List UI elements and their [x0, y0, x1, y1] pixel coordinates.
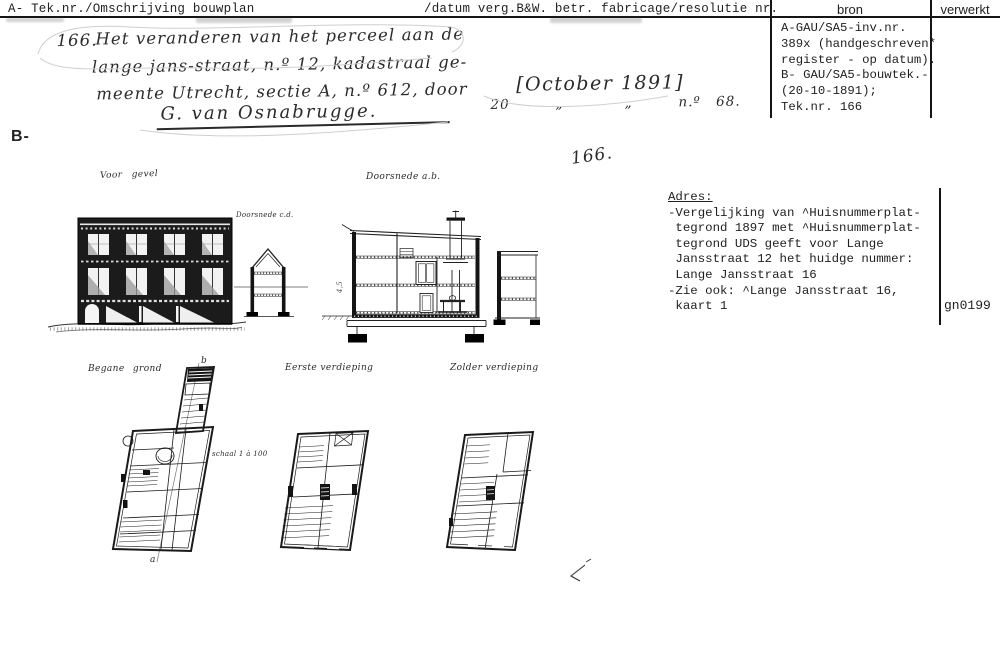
plan-ground-drawing	[113, 363, 214, 562]
plan-attic-label: Zolder verdieping	[450, 363, 538, 373]
facade-drawing	[48, 218, 246, 332]
adres-line: Jansstraat 12 het huidge nummer:	[668, 252, 921, 268]
bron-line: (20-10-1891);	[781, 84, 936, 100]
bron-column-left-rule	[770, 0, 772, 118]
adres-panel: Adres: -Vergelijking van ^Huisnummerplat…	[668, 190, 921, 315]
bron-line: Tek.nr. 166	[781, 100, 936, 116]
bron-line: A-GAU/SA5-inv.nr.	[781, 21, 936, 37]
section-ab-label: Doorsnede a.b.	[366, 172, 441, 182]
handwriting-line-3: meente Utrecht, sectie A, n.º 612, door	[96, 79, 468, 103]
column-header-verwerkt: verwerkt	[930, 2, 1000, 17]
section-marker-b: b	[201, 356, 207, 366]
section-ab-drawing	[322, 211, 540, 343]
margin-mark-b: B-	[11, 128, 30, 146]
bron-line: B- GAU/SA5-bouwtek.-	[781, 68, 936, 84]
handwritten-signature: G. van Osnabrugge.	[160, 101, 377, 125]
handwritten-center-number: 166.	[570, 143, 614, 169]
direction-arrow-mark	[571, 559, 591, 581]
handwriting-line-1: Het veranderen van het perceel aan de	[95, 24, 464, 48]
plan-first-drawing	[281, 431, 368, 550]
scale-note: schaal 1 à 100	[212, 450, 267, 458]
plan-first-label: Eerste verdieping	[285, 363, 373, 373]
adres-line: -Zie ook: ^Lange Jansstraat 16,	[668, 284, 921, 300]
section-cd-drawing	[234, 249, 308, 317]
handwritten-description: 166. Het veranderen van het perceel aan …	[0, 0, 701, 155]
adres-line: tegrond 1897 met ^Huisnummerplat-	[668, 221, 921, 237]
column-header-bron: bron	[770, 2, 930, 17]
facade-label: Voor gevel	[100, 169, 158, 181]
handwriting-line-2: lange jans-straat, n.º 12, kadastraal ge…	[92, 52, 468, 76]
bron-line: 389x (handgeschreven*	[781, 37, 936, 53]
section-marker-a: a	[150, 555, 156, 565]
handwritten-date-bracket: [October 1891]	[516, 71, 684, 95]
adres-line: kaart 1	[668, 299, 921, 315]
archive-code: gn0199	[944, 298, 991, 313]
bron-line: register - op datum).	[781, 53, 936, 69]
adres-heading: Adres:	[668, 190, 921, 206]
verwerkt-column-rule-bottom	[939, 188, 941, 325]
plan-attic-drawing	[447, 432, 533, 550]
section-cd-label: Doorsnede c.d.	[236, 211, 294, 219]
plan-ground-label: Begane grond	[88, 364, 162, 374]
section-dimension-note: 4,5	[336, 281, 344, 293]
handwritten-item-number: 166.	[56, 31, 97, 51]
bron-panel: A-GAU/SA5-inv.nr. 389x (handgeschreven* …	[781, 21, 936, 116]
adres-line: Lange Jansstraat 16	[668, 268, 921, 284]
handwritten-date-line: 20 „ „ n.º 68.	[490, 94, 740, 113]
adres-line: tegrond UDS geeft voor Lange	[668, 237, 921, 253]
scanned-archive-card: A- Tek.nr./Omschrijving bouwplan /datum …	[0, 0, 1000, 645]
adres-line: -Vergelijking van ^Huisnummerplat-	[668, 206, 921, 222]
